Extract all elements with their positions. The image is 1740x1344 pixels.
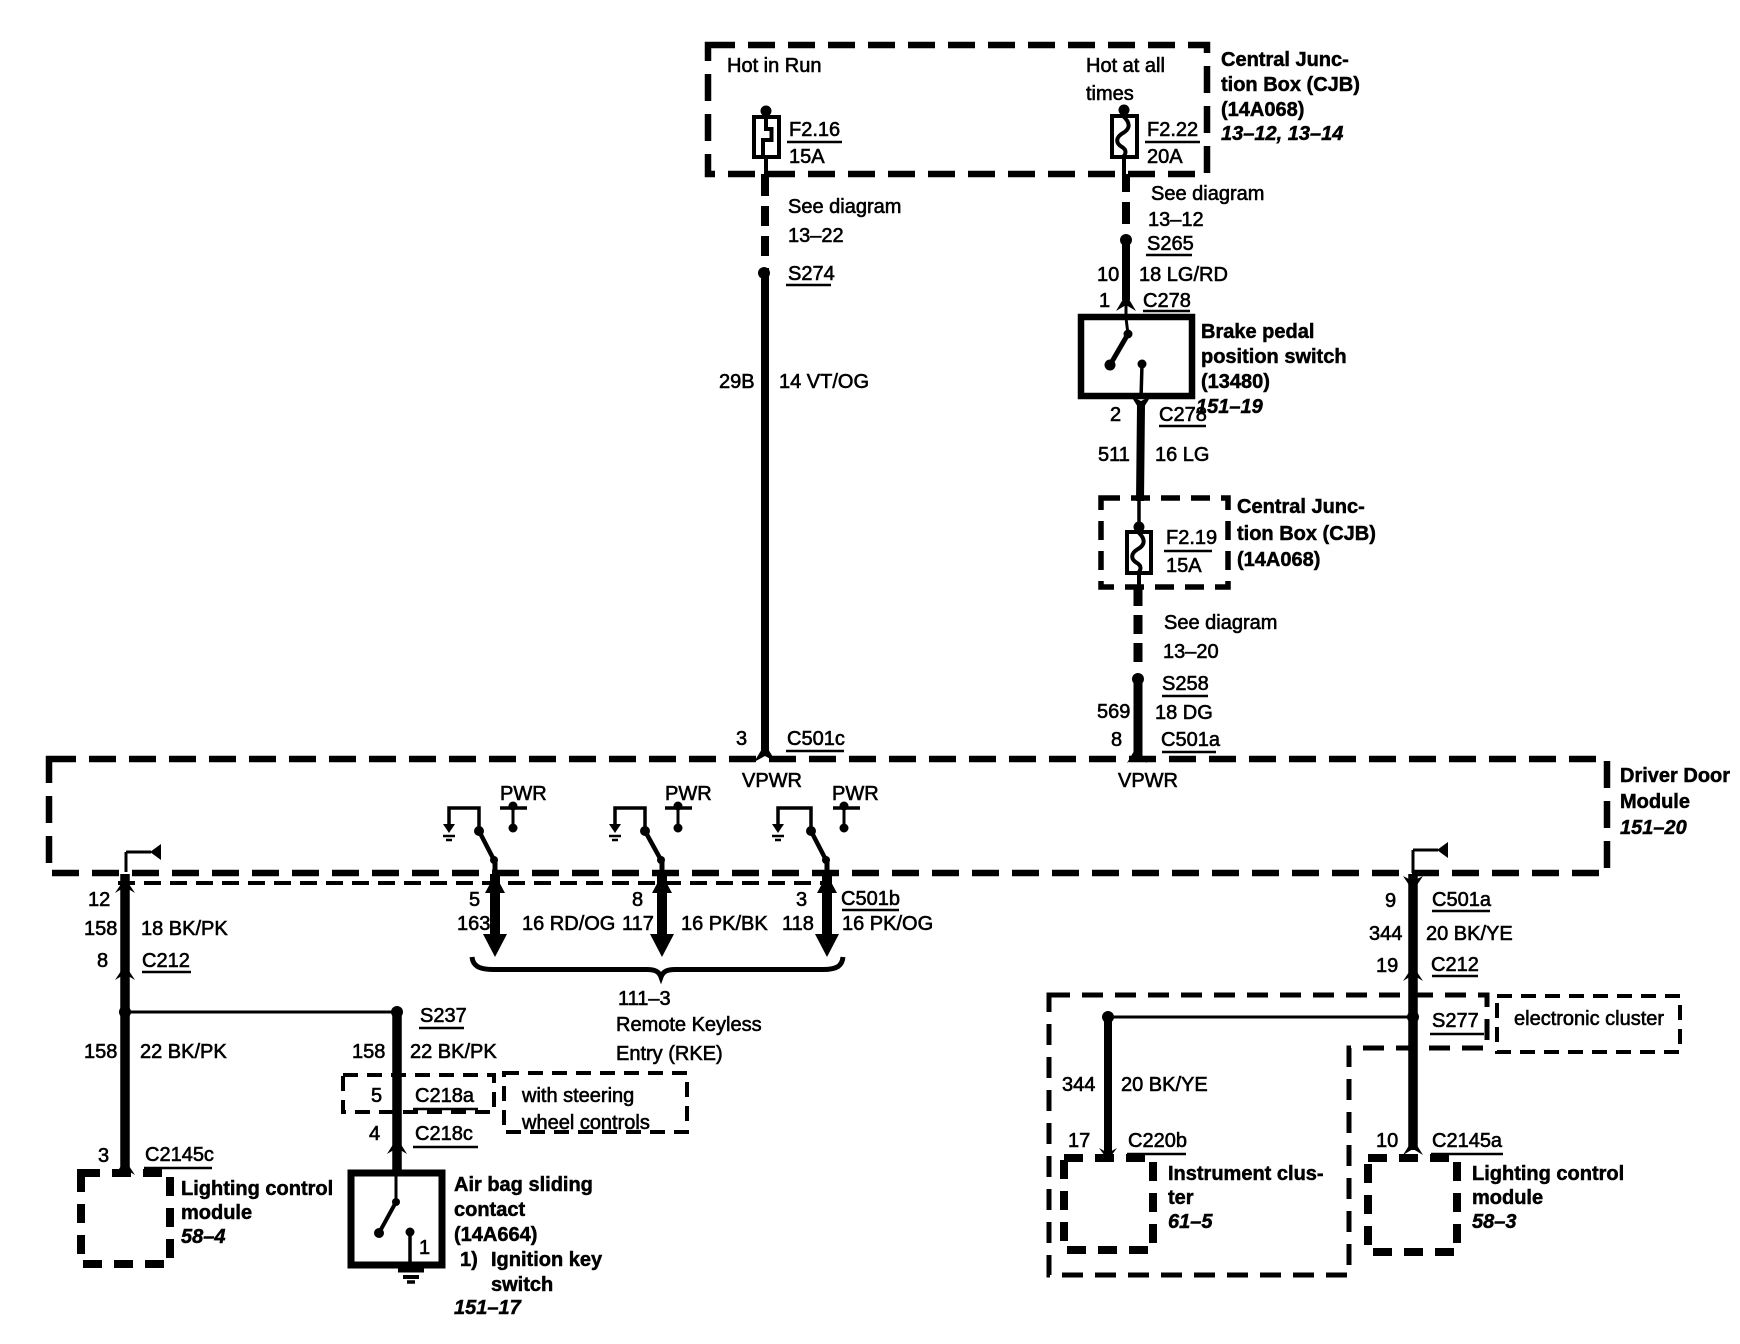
- svg-text:times: times: [1086, 83, 1134, 105]
- svg-text:(14A068): (14A068): [1237, 549, 1320, 571]
- svg-text:S277: S277: [1432, 1010, 1479, 1032]
- svg-text:C501b: C501b: [841, 888, 900, 910]
- svg-text:5: 5: [371, 1085, 382, 1107]
- svg-text:C2145c: C2145c: [145, 1144, 214, 1166]
- svg-text:VPWR: VPWR: [742, 770, 802, 792]
- svg-text:PWR: PWR: [500, 783, 547, 805]
- svg-text:C501a: C501a: [1161, 729, 1221, 751]
- svg-text:Hot in Run: Hot in Run: [727, 55, 822, 77]
- svg-text:22 BK/PK: 22 BK/PK: [410, 1041, 497, 1063]
- svg-text:10: 10: [1097, 264, 1119, 286]
- svg-text:15A: 15A: [1166, 555, 1202, 577]
- svg-text:Brake pedal: Brake pedal: [1201, 321, 1314, 343]
- svg-text:61–5: 61–5: [1168, 1211, 1213, 1233]
- svg-text:10: 10: [1376, 1130, 1398, 1152]
- svg-text:Driver Door: Driver Door: [1620, 765, 1730, 787]
- svg-text:13–20: 13–20: [1163, 641, 1219, 663]
- svg-text:12: 12: [88, 889, 110, 911]
- svg-text:18 BK/PK: 18 BK/PK: [141, 918, 228, 940]
- svg-text:158: 158: [84, 918, 117, 940]
- svg-text:3: 3: [736, 728, 747, 750]
- svg-text:8: 8: [632, 889, 643, 911]
- svg-text:F2.19: F2.19: [1166, 527, 1217, 549]
- svg-text:(14A664): (14A664): [454, 1224, 537, 1246]
- svg-text:PWR: PWR: [832, 783, 879, 805]
- svg-text:511: 511: [1098, 444, 1130, 466]
- svg-text:tion Box (CJB): tion Box (CJB): [1221, 74, 1360, 96]
- svg-text:151–17: 151–17: [454, 1297, 522, 1319]
- svg-text:Central Junc-: Central Junc-: [1237, 496, 1365, 518]
- svg-text:Lighting control: Lighting control: [1472, 1163, 1624, 1185]
- svg-text:1): 1): [460, 1249, 478, 1271]
- svg-text:1: 1: [1099, 290, 1110, 312]
- svg-text:163: 163: [457, 913, 490, 935]
- svg-text:C501c: C501c: [787, 728, 845, 750]
- svg-text:See diagram: See diagram: [788, 196, 901, 218]
- svg-text:C218c: C218c: [415, 1123, 473, 1145]
- svg-text:17: 17: [1068, 1130, 1090, 1152]
- svg-text:19: 19: [1376, 955, 1398, 977]
- svg-text:58–4: 58–4: [181, 1226, 226, 1248]
- svg-text:S274: S274: [788, 263, 835, 285]
- svg-text:Hot at all: Hot at all: [1086, 55, 1165, 77]
- svg-text:3: 3: [796, 889, 807, 911]
- svg-text:wheel controls: wheel controls: [521, 1112, 650, 1134]
- svg-text:contact: contact: [454, 1199, 525, 1221]
- svg-text:S265: S265: [1147, 233, 1194, 255]
- svg-text:S237: S237: [420, 1005, 467, 1027]
- svg-text:module: module: [181, 1202, 252, 1224]
- svg-text:C218a: C218a: [415, 1085, 475, 1107]
- svg-text:20 BK/YE: 20 BK/YE: [1426, 923, 1513, 945]
- svg-text:344: 344: [1369, 923, 1402, 945]
- svg-text:(13480): (13480): [1201, 371, 1270, 393]
- svg-text:22 BK/PK: 22 BK/PK: [140, 1041, 227, 1063]
- svg-text:9: 9: [1385, 890, 1396, 912]
- svg-text:29B: 29B: [719, 371, 755, 393]
- svg-text:Ignition key: Ignition key: [491, 1249, 603, 1271]
- svg-text:See diagram: See diagram: [1151, 183, 1264, 205]
- svg-text:Module: Module: [1620, 791, 1690, 813]
- svg-text:C278: C278: [1159, 404, 1207, 426]
- svg-text:158: 158: [84, 1041, 117, 1063]
- svg-text:C2145a: C2145a: [1432, 1130, 1503, 1152]
- svg-text:(14A068): (14A068): [1221, 99, 1304, 121]
- svg-text:16 PK/OG: 16 PK/OG: [842, 913, 933, 935]
- svg-text:Remote Keyless: Remote Keyless: [616, 1014, 762, 1036]
- svg-text:13–12: 13–12: [1148, 209, 1204, 231]
- svg-text:F2.16: F2.16: [789, 119, 840, 141]
- svg-text:electronic cluster: electronic cluster: [1514, 1008, 1664, 1030]
- svg-text:Central Junc-: Central Junc-: [1221, 49, 1349, 71]
- svg-text:20 BK/YE: 20 BK/YE: [1121, 1074, 1208, 1096]
- svg-text:C212: C212: [1431, 954, 1479, 976]
- svg-text:C220b: C220b: [1128, 1130, 1187, 1152]
- svg-text:158: 158: [352, 1041, 385, 1063]
- svg-text:1: 1: [419, 1237, 430, 1259]
- svg-text:C501a: C501a: [1432, 889, 1492, 911]
- svg-text:18 LG/RD: 18 LG/RD: [1139, 264, 1228, 286]
- svg-text:See diagram: See diagram: [1164, 612, 1277, 634]
- svg-text:ter: ter: [1168, 1187, 1194, 1209]
- svg-text:4: 4: [369, 1123, 380, 1145]
- svg-text:117: 117: [622, 913, 654, 935]
- svg-text:16 PK/BK: 16 PK/BK: [681, 913, 768, 935]
- svg-text:18 DG: 18 DG: [1155, 702, 1213, 724]
- svg-text:344: 344: [1062, 1074, 1095, 1096]
- svg-text:58–3: 58–3: [1472, 1211, 1517, 1233]
- svg-text:S258: S258: [1162, 673, 1209, 695]
- svg-text:14 VT/OG: 14 VT/OG: [779, 371, 869, 393]
- svg-text:8: 8: [97, 950, 108, 972]
- svg-text:module: module: [1472, 1187, 1543, 1209]
- svg-text:20A: 20A: [1147, 146, 1183, 168]
- svg-text:569: 569: [1097, 701, 1130, 723]
- svg-text:2: 2: [1110, 404, 1121, 426]
- svg-text:with steering: with steering: [521, 1085, 634, 1107]
- svg-text:Entry (RKE): Entry (RKE): [616, 1043, 723, 1065]
- svg-text:13–22: 13–22: [788, 225, 844, 247]
- svg-text:8: 8: [1111, 729, 1122, 751]
- svg-text:13–12, 13–14: 13–12, 13–14: [1221, 123, 1343, 145]
- svg-text:Air bag sliding: Air bag sliding: [454, 1174, 593, 1196]
- svg-text:15A: 15A: [789, 146, 825, 168]
- svg-text:Instrument clus-: Instrument clus-: [1168, 1163, 1324, 1185]
- svg-text:C212: C212: [142, 950, 190, 972]
- svg-text:3: 3: [98, 1145, 109, 1167]
- svg-text:position switch: position switch: [1201, 346, 1347, 368]
- svg-text:5: 5: [469, 889, 480, 911]
- svg-text:111–3: 111–3: [618, 988, 671, 1010]
- svg-text:151–20: 151–20: [1620, 817, 1687, 839]
- svg-text:Lighting control: Lighting control: [181, 1178, 333, 1200]
- svg-text:C278: C278: [1143, 290, 1191, 312]
- svg-text:PWR: PWR: [665, 783, 712, 805]
- svg-text:16 LG: 16 LG: [1155, 444, 1209, 466]
- svg-text:tion Box (CJB): tion Box (CJB): [1237, 523, 1376, 545]
- svg-text:switch: switch: [491, 1274, 553, 1296]
- svg-text:16 RD/OG: 16 RD/OG: [522, 913, 615, 935]
- svg-text:F2.22: F2.22: [1147, 119, 1198, 141]
- svg-text:118: 118: [782, 913, 814, 935]
- svg-text:VPWR: VPWR: [1118, 770, 1178, 792]
